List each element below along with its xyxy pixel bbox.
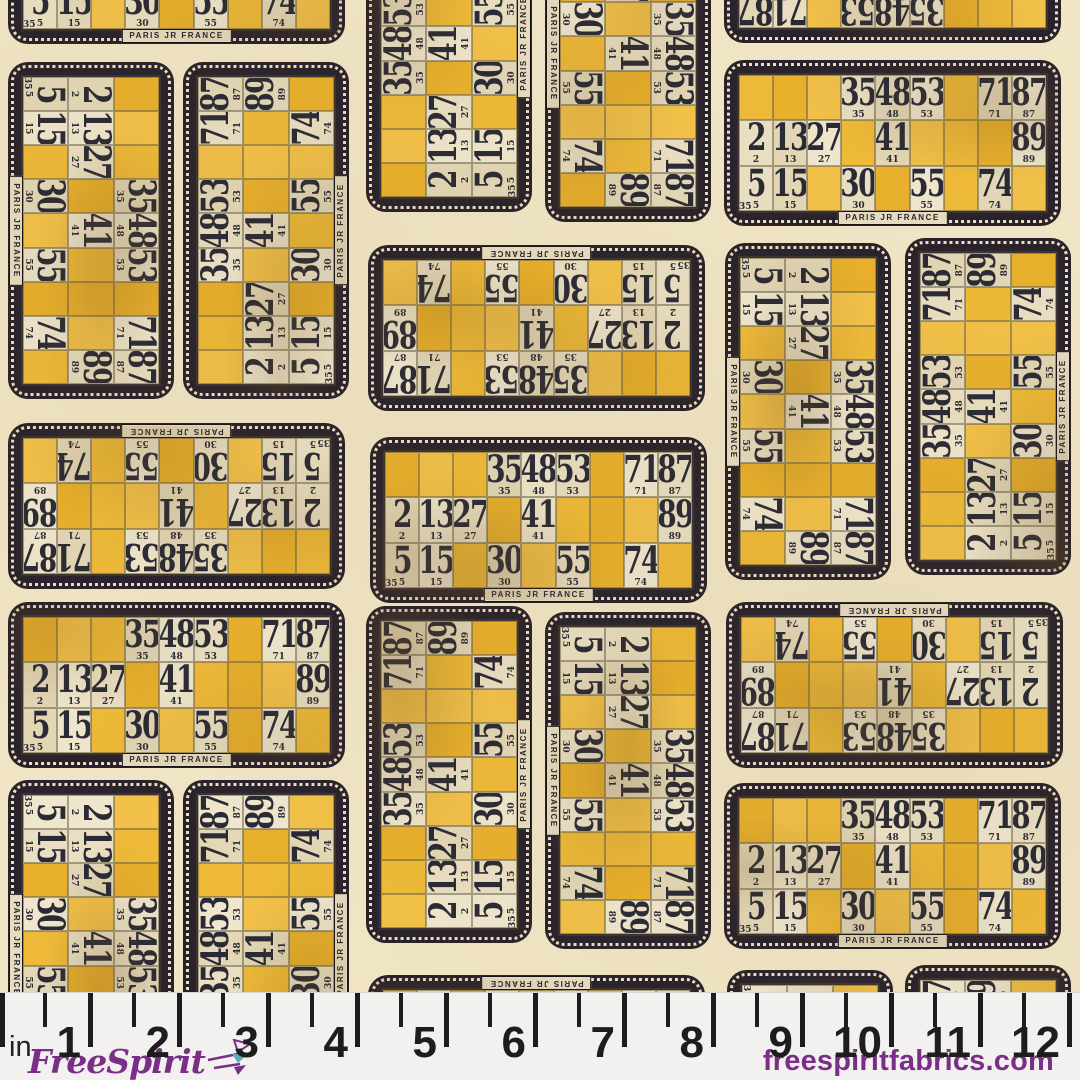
card-cell-number: 4848: [114, 213, 159, 247]
card-number: 5: [749, 262, 786, 288]
card-number: 48: [920, 393, 957, 419]
card-cell-blank: [1012, 166, 1046, 211]
card-number: 87: [839, 535, 876, 561]
card-cell-number: 4848: [920, 389, 965, 423]
card-number: 35: [913, 0, 939, 28]
card-number: 5: [472, 167, 509, 193]
card-number: 35: [198, 251, 235, 277]
card-cell-number: 7171: [381, 655, 426, 689]
card-cell-number: 4141: [605, 763, 650, 797]
card-cell-blank: [651, 661, 696, 695]
card-cell-number: 22: [605, 627, 650, 661]
card-cell-blank: [23, 213, 68, 247]
card-cell-blank: [605, 866, 650, 900]
card-cell-blank: [57, 617, 91, 662]
fabric-swatch: 3535484853537171878722131327274141898955…: [0, 0, 1080, 993]
card-cell-blank: [68, 179, 113, 213]
card-number: 35: [381, 795, 418, 821]
card-cell-number: 7171: [831, 497, 876, 531]
card-number: 74: [266, 0, 292, 20]
card-cell-number: 3030: [472, 61, 517, 95]
card-cell-blank: [472, 621, 517, 655]
card-cell-blank: [946, 617, 980, 662]
card-cell-number: 3535: [381, 792, 426, 826]
card-cell-number: 1313: [622, 305, 656, 350]
card-number: 55: [129, 447, 155, 484]
card-grid: 3535484853537171878722131327274141898955…: [918, 251, 1058, 562]
card-cell-blank: [23, 145, 68, 179]
card-cell-number: 5353: [910, 75, 944, 120]
card-number: 53: [198, 183, 235, 209]
card-cell-number: 5353: [831, 429, 876, 463]
card-cell-blank: [381, 860, 426, 894]
bingo-card-slot: 3535484853537171878722131327274141898955…: [726, 602, 1063, 768]
card-number: 87: [198, 799, 235, 825]
card-cell-number: 7474: [978, 889, 1012, 934]
card-number: 71: [839, 501, 876, 527]
card-number: 27: [243, 286, 280, 312]
card-cell-blank: [451, 260, 485, 305]
card-cell-number: 22: [68, 795, 113, 829]
ruler-inch-tick: [88, 993, 93, 1047]
card-number: 5: [289, 354, 326, 380]
card-number: 15: [266, 447, 292, 484]
card-cell-number: 5353: [381, 723, 426, 757]
card-cell-number: 3535: [912, 708, 946, 753]
card-cell-blank: [426, 61, 471, 95]
card-number: 55: [32, 969, 69, 993]
card-cell-number: 4141: [519, 305, 553, 350]
card-number: 74: [749, 501, 786, 527]
card-cell-number: 4848: [159, 529, 193, 574]
card-cell-number: 22: [1014, 662, 1048, 707]
card-cell-blank: [114, 795, 159, 829]
card-corner-label: 35: [325, 371, 335, 384]
card-cell-number: 8787: [1012, 798, 1046, 843]
card-grid: 3535484853537171878722131327274141898955…: [379, 0, 519, 199]
card-corner-label: 35: [23, 744, 36, 754]
card-grid: 3535484853537171878722131327274141898955…: [383, 450, 694, 590]
card-cell-number: 7474: [775, 617, 809, 662]
card-cell-number: 3535: [125, 617, 159, 662]
card-cell-blank: [831, 292, 876, 326]
card-grid: 3535484853537171878722131327274141898955…: [739, 615, 1050, 755]
card-cell-number: 1515: [472, 129, 517, 163]
card-cell-blank: [605, 798, 650, 832]
card-cell-number: 2727: [243, 282, 288, 316]
card-number: 55: [569, 74, 606, 100]
card-number: 55: [913, 889, 939, 926]
bingo-card-slot: 3535484853537171878722131327274141898955…: [368, 975, 705, 993]
card-cell-blank: [519, 260, 553, 305]
card-number: 53: [381, 727, 418, 753]
card-number: 89: [426, 625, 463, 651]
card-cell-number: 4141: [159, 483, 193, 528]
card-number: 89: [745, 671, 771, 708]
card-cell-number: 7171: [57, 529, 91, 574]
card-number: 48: [198, 935, 235, 961]
card-cell-blank: [944, 798, 978, 843]
card-cell-number: 5555: [23, 248, 68, 282]
card-grid: 3535484853537171878722131327274141898955…: [737, 796, 1048, 936]
card-cell-blank: [453, 543, 487, 588]
card-number: 27: [232, 492, 258, 529]
card-cell-blank: [228, 708, 262, 753]
card-number: 48: [525, 452, 551, 489]
card-number: 53: [129, 537, 155, 574]
card-cell-blank: [114, 145, 159, 179]
card-cell-number: 5353: [194, 617, 228, 662]
card-cell-number: 8989: [1012, 120, 1046, 165]
card-cell-blank: [451, 351, 485, 396]
card-cell-blank: [1011, 389, 1056, 423]
card-number: 71: [982, 798, 1008, 835]
card-cell-number: 4848: [198, 931, 243, 965]
bingo-card-slot: 3535484853537171878722131327274141898955…: [183, 62, 349, 399]
card-number: 55: [569, 801, 606, 827]
card-number: 48: [381, 30, 418, 56]
card-number: 48: [163, 617, 189, 654]
card-number: 55: [472, 0, 509, 23]
card-cell-number: 5555: [289, 179, 334, 213]
card-number: 87: [745, 716, 771, 753]
bingo-card: 3535484853537171878722131327274141898955…: [545, 612, 711, 949]
card-cell-blank: [590, 452, 624, 497]
card-cell-number: 3535: [651, 729, 696, 763]
card-cell-blank: [383, 260, 417, 305]
paris-france-label: PARIS JR FRANCE: [121, 29, 231, 43]
card-cell-number: 1515: [472, 860, 517, 894]
card-corner-label: 35: [317, 437, 330, 447]
card-cell-blank: [809, 662, 843, 707]
card-cell-number: 5353: [125, 529, 159, 574]
card-number: 30: [569, 733, 606, 759]
card-cell-number: 5555: [23, 966, 68, 993]
card-number: 41: [163, 662, 189, 699]
card-cell-blank: [622, 351, 656, 396]
card-cell-blank: [57, 483, 91, 528]
card-cell-number: 3030: [560, 729, 605, 763]
card-number: 30: [1011, 427, 1048, 453]
card-cell-blank: [841, 843, 875, 888]
card-cell-blank: [125, 483, 159, 528]
card-number: 35: [915, 716, 941, 753]
card-cell-number: 8787: [198, 795, 243, 829]
card-cell-blank: [419, 452, 453, 497]
card-cell-blank: [68, 897, 113, 931]
card-number: 27: [965, 462, 1002, 488]
card-number: 2: [743, 843, 769, 880]
card-cell-blank: [68, 282, 113, 316]
card-number: 5: [32, 799, 69, 825]
card-cell-number: 1313: [605, 661, 650, 695]
card-number: 2: [77, 81, 114, 107]
card-number: 41: [426, 761, 463, 787]
card-cell-blank: [114, 829, 159, 863]
card-cell-number: 3030: [23, 897, 68, 931]
paris-france-label: PARIS JR FRANCE: [483, 588, 593, 602]
card-cell-blank: [198, 863, 243, 897]
card-cell-number: 8989: [658, 497, 692, 542]
card-number: 5: [300, 447, 326, 484]
card-number: 55: [1011, 359, 1048, 385]
card-cell-blank: [809, 617, 843, 662]
card-grid: 3535484853537171878722131327274141898955…: [737, 0, 1048, 30]
card-number: 27: [77, 149, 114, 175]
card-cell-number: 1515: [560, 661, 605, 695]
card-number: 15: [61, 708, 87, 745]
card-number: 5: [743, 166, 769, 203]
card-number: 41: [243, 935, 280, 961]
card-cell-number: 3030: [560, 2, 605, 36]
card-cell-number: 4141: [426, 757, 471, 791]
card-cell-number: 5555: [740, 429, 785, 463]
card-cell-blank: [426, 792, 471, 826]
card-cell-blank: [978, 843, 1012, 888]
card-cell-number: 3030: [487, 543, 521, 588]
card-number: 5: [472, 898, 509, 924]
card-number: 5: [743, 889, 769, 926]
card-cell-number: 22: [965, 526, 1010, 560]
ruler-number: 8: [634, 1021, 704, 1065]
card-cell-number: 7171: [651, 139, 696, 173]
card-cell-number: 2727: [785, 326, 830, 360]
card-cell-blank: [289, 213, 334, 247]
card-number: 48: [879, 0, 905, 28]
card-cell-blank: [944, 889, 978, 934]
bingo-card: 3535484853537171878722131327274141898955…: [368, 245, 705, 411]
card-cell-number: 3030: [841, 166, 875, 211]
card-corner-label: 35: [1035, 616, 1048, 626]
card-cell-blank: [590, 497, 624, 542]
bingo-card-slot: 3535484853537171878722131327274141898955…: [8, 602, 345, 768]
card-number: 27: [592, 314, 618, 351]
card-cell-blank: [198, 316, 243, 350]
card-number: 53: [197, 617, 223, 654]
card-number: 35: [659, 733, 696, 759]
paris-france-label: PARIS JR FRANCE: [121, 753, 231, 767]
card-number: 53: [847, 716, 873, 753]
card-cell-number: 3535: [194, 529, 228, 574]
ruler-number: 6: [456, 1021, 526, 1065]
card-cell-blank: [194, 483, 228, 528]
ruler-number: 1: [11, 1021, 81, 1065]
card-number: 2: [965, 530, 1002, 556]
bingo-card-slot: 3535484853537171878722131327274141898955…: [366, 606, 532, 943]
card-number: 30: [569, 6, 606, 32]
card-number: 71: [628, 452, 654, 489]
card-cell-number: 4141: [159, 662, 193, 707]
card-number: 71: [198, 833, 235, 859]
card-grid: 3535484853537171878722131327274141898955…: [738, 256, 878, 567]
card-cell-number: 4848: [198, 213, 243, 247]
card-number: 15: [423, 543, 449, 580]
card-number: 41: [77, 217, 114, 243]
ruler-inch-tick: [177, 993, 182, 1047]
card-number: 53: [920, 359, 957, 385]
card-number: 27: [95, 662, 121, 699]
card-cell-blank: [965, 321, 1010, 355]
card-number: 89: [387, 314, 413, 351]
card-number: 53: [913, 75, 939, 112]
card-number: 15: [626, 269, 652, 306]
card-number: 5: [27, 0, 53, 20]
card-cell-number: 5555: [194, 0, 228, 29]
card-cell-blank: [590, 543, 624, 588]
card-cell-blank: [23, 438, 57, 483]
card-cell-blank: [381, 129, 426, 163]
bingo-card-slot: 3535484853537171878722131327274141898955…: [725, 243, 891, 580]
card-cell-blank: [289, 145, 334, 179]
card-cell-number: 7171: [978, 798, 1012, 843]
card-number: 48: [122, 217, 159, 243]
card-number: 74: [266, 708, 292, 745]
paris-france-label: PARIS JR FRANCE: [9, 175, 23, 285]
card-cell-blank: [807, 0, 841, 28]
card-cell-number: 22: [296, 483, 330, 528]
card-cell-number: 3535: [554, 351, 588, 396]
card-cell-number: 7171: [624, 452, 658, 497]
card-cell-blank: [451, 305, 485, 350]
card-number: 89: [1016, 843, 1042, 880]
card-number: 71: [61, 537, 87, 574]
card-cell-number: 7171: [775, 708, 809, 753]
card-cell-blank: [651, 105, 696, 139]
card-cell-blank: [588, 351, 622, 396]
card-number: 71: [920, 291, 957, 317]
ruler-inch-tick: [355, 993, 360, 1047]
card-cell-blank: [125, 662, 159, 707]
bingo-card-slot: 3535484853537171878722131327274141898955…: [368, 245, 705, 411]
bingo-card-slot: 3535484853537171878722131327274141898955…: [8, 62, 174, 399]
card-cell-number: 22: [739, 120, 773, 165]
card-number: 35: [557, 359, 583, 396]
card-grid: 3535484853537171878722131327274141898955…: [558, 0, 698, 209]
card-cell-number: 7474: [560, 139, 605, 173]
card-cell-blank: [1012, 0, 1046, 28]
card-cell-blank: [228, 617, 262, 662]
card-cell-number: 2727: [807, 843, 841, 888]
card-cell-number: 1515: [23, 829, 68, 863]
card-cell-blank: [228, 662, 262, 707]
card-cell-number: 5353: [198, 179, 243, 213]
card-number: 15: [32, 115, 69, 141]
card-corner-label: 35: [677, 259, 690, 269]
card-cell-blank: [23, 350, 68, 384]
card-cell-number: 7171: [773, 0, 807, 28]
card-cell-blank: [841, 120, 875, 165]
card-number: 30: [289, 251, 326, 277]
card-number: 89: [662, 497, 688, 534]
paris-france-label: PARIS JR FRANCE: [481, 976, 591, 990]
card-cell-blank: [807, 798, 841, 843]
card-cell-number: 3535: [114, 897, 159, 931]
card-number: 30: [491, 543, 517, 580]
card-number: 13: [423, 497, 449, 534]
ruler-number: 11: [901, 1021, 971, 1065]
card-cell-number: 3030: [125, 708, 159, 753]
card-cell-number: 2727: [807, 120, 841, 165]
card-number: 35: [845, 75, 871, 112]
card-corner-label: 35: [739, 258, 749, 271]
paris-france-label: PARIS JR FRANCE: [517, 719, 531, 829]
card-number: 35: [845, 798, 871, 835]
card-number: 87: [920, 257, 957, 283]
card-cell-number: 5353: [556, 452, 590, 497]
card-cell-blank: [944, 166, 978, 211]
card-cell-number: 7474: [262, 0, 296, 29]
card-number: 15: [472, 864, 509, 890]
bingo-card: 3535484853537171878722131327274141898955…: [727, 970, 893, 993]
card-cell-blank: [605, 71, 650, 105]
card-cell-blank: [485, 305, 519, 350]
card-cell-number: 5555: [472, 723, 517, 757]
card-cell-blank: [91, 617, 125, 662]
paris-france-label: PARIS JR FRANCE: [546, 0, 560, 109]
ruler: in FreeSpirit freespiritfabrics.com 1234…: [0, 992, 1080, 1080]
card-cell-blank: [521, 543, 555, 588]
card-number: 35: [197, 537, 223, 574]
bingo-card: 3535484853537171878722131327274141898955…: [8, 423, 345, 589]
card-cell-blank: [289, 795, 334, 829]
card-cell-number: 2727: [453, 497, 487, 542]
card-grid: 3535484853537171878722131327274141898955…: [196, 793, 336, 993]
card-cell-blank: [228, 529, 262, 574]
card-number: 13: [984, 671, 1010, 708]
bingo-card: 3535484853537171878722131327274141898955…: [366, 0, 532, 212]
ruler-inch-tick: [711, 993, 716, 1047]
card-number: 41: [525, 497, 551, 534]
card-cell-number: 1313: [68, 829, 113, 863]
card-cell-number: 8787: [381, 621, 426, 655]
card-cell-blank: [417, 305, 451, 350]
card-number: 89: [614, 904, 651, 930]
card-cell-blank: [198, 282, 243, 316]
card-cell-blank: [91, 438, 125, 483]
card-cell-number: 3535: [381, 61, 426, 95]
card-number: 15: [777, 889, 803, 926]
paris-france-label: PARIS JR FRANCE: [546, 725, 560, 835]
card-cell-blank: [978, 0, 1012, 28]
card-number: 35: [122, 901, 159, 927]
card-number: 71: [982, 75, 1008, 112]
card-cell-number: 4848: [114, 931, 159, 965]
card-cell-blank: [843, 662, 877, 707]
card-number: 13: [777, 843, 803, 880]
card-cell-blank: [23, 863, 68, 897]
card-cell-blank: [944, 843, 978, 888]
card-number: 15: [749, 296, 786, 322]
card-grid: 3535484853537171878722131327274141898955…: [918, 978, 1058, 993]
bingo-card: 3535484853537171878722131327274141898955…: [183, 780, 349, 993]
card-cell-blank: [114, 863, 159, 897]
ruler-inch-tick: [1067, 993, 1072, 1047]
card-cell-blank: [262, 529, 296, 574]
card-cell-blank: [560, 173, 605, 207]
card-cell-number: 1313: [785, 292, 830, 326]
card-cell-number: 5353: [651, 71, 696, 105]
card-number: 87: [659, 177, 696, 203]
card-corner-label: 35: [739, 202, 752, 212]
card-number: 53: [381, 0, 418, 23]
card-cell-number: 8989: [785, 531, 830, 565]
card-number: 87: [122, 354, 159, 380]
card-cell-number: 8787: [651, 173, 696, 207]
card-cell-blank: [588, 260, 622, 305]
card-cell-number: 8989: [296, 662, 330, 707]
card-number: 30: [472, 795, 509, 821]
card-cell-blank: [785, 360, 830, 394]
